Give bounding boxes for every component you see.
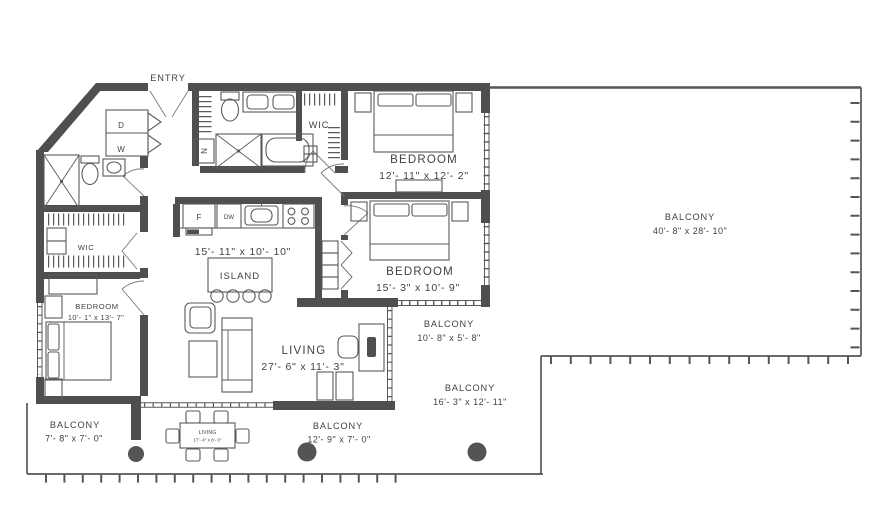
chair-icon [214,411,228,423]
wic1-label: WIC [309,120,330,130]
toilet-icon [221,92,239,121]
kitchen-sink-icon [245,201,278,225]
bifold-door-icon [148,135,161,153]
closet-bifold-icon [341,241,352,289]
laundry-closet: D W [106,110,161,156]
shower-icon [44,155,79,208]
toilet-icon [81,156,99,185]
bathtub-icon [262,134,313,166]
chair-icon [186,449,200,461]
balcony-mid-label: BALCONY [424,319,474,329]
balcony-bottom-dims: 12'- 9" x 7'- 0" [307,435,370,445]
fridge-icon: F [183,204,215,235]
living-label: LIVING [282,345,327,357]
dishwasher-icon: DW [217,204,241,228]
bathroom2-door-icon [123,169,144,196]
chair-icon [214,449,228,461]
dining-table-label: LIVING [199,430,217,436]
sink-icon [103,159,125,176]
kitchen-dims: 15'- 11" x 10'- 10" [195,246,292,258]
fridge-label: F [197,213,202,222]
kitchen: F DW 15'- 11" x 10'- 10" ISLAND [180,201,320,302]
shower-icon [216,134,261,168]
balcony-bottom-label: BALCONY [313,421,363,431]
bedroom3-door-icon [122,281,144,315]
desk-chair-icon [338,336,358,358]
balcony-large: BALCONY 40'- 8" x 28'- 10" [653,212,727,236]
dining-table-dims: 17'- 4" x 8'- 0" [193,438,222,443]
side-table-icon [189,341,217,377]
chair-icon [186,411,200,423]
balcony-large-label: BALCONY [665,212,715,222]
living-room: LIVING 27'- 6" x 11'- 3" [185,303,384,400]
closet-shelves-icon [322,241,338,289]
sofa-icon [222,318,252,392]
linen-label: N [200,148,209,154]
balcony-outline [27,88,861,475]
living-dims: 27'- 6" x 11'- 3" [261,361,344,373]
column-icon [468,443,487,462]
bifold-door-icon [148,113,161,131]
nightstand-icon [355,93,371,112]
balcony-lower-dims: 16'- 3" x 12'- 11" [433,397,507,407]
floorplan-drawing: ENTRY D W N [0,0,896,512]
column-icon [298,443,317,462]
bedroom-2: BEDROOM 15'- 3" x 10'- 9" [322,201,468,294]
balcony-lower-label: BALCONY [445,383,495,393]
balcony-mid: BALCONY 10'- 8" x 5'- 8" [417,319,480,343]
dishwasher-label: DW [224,214,234,221]
seat-icon [317,372,333,400]
island-label: ISLAND [220,271,260,282]
chair-icon [236,429,249,443]
seat-icon [336,372,353,400]
entry-label: ENTRY [150,73,185,83]
entry-door-icon [150,91,188,117]
wic-bedroom3: WIC [47,220,126,262]
main-bathroom: N [194,92,313,168]
wic2-label: WIC [78,243,95,252]
balcony-lower: BALCONY 16'- 3" x 12'- 11" [433,383,507,407]
bedroom1-dims: 12'- 11" x 12'- 2" [379,170,469,182]
bedroom3-label: BEDROOM [75,302,118,311]
bed-icon [370,201,449,260]
second-bathroom [44,155,125,208]
balcony-left-label: BALCONY [50,420,100,430]
balcony-bottom: BALCONY 12'- 9" x 7'- 0" [307,421,370,445]
dryer-label: D [118,121,124,130]
bed-icon [46,322,111,380]
nightstand-icon [452,202,468,221]
desk-icon [338,324,384,371]
balcony-large-dims: 40'- 8" x 28'- 10" [653,226,727,236]
washer-label: W [117,145,125,154]
armchair-icon [185,303,215,333]
column-icon [128,446,144,462]
wic2-door-icon [122,233,137,269]
bedroom-1: BEDROOM 12'- 11" x 12'- 2" [355,91,472,192]
structural-columns [128,443,487,463]
nightstand-icon [351,202,367,221]
bed-icon [374,91,453,152]
balcony-mid-dims: 10'- 8" x 5'- 8" [417,333,480,343]
bedroom2-dims: 15'- 3" x 10'- 9" [376,282,460,294]
nightstand-icon [45,296,62,318]
balcony-left: BALCONY 7'- 8" x 7'- 0" [45,420,103,444]
stove-icon [283,204,314,228]
floorplan-page: ENTRY D W N [0,0,896,512]
bedroom1-label: BEDROOM [390,154,458,166]
bedroom-3: BEDROOM 10'- 1" x 13'- 7" [45,275,124,399]
bedroom3-dims: 10'- 1" x 13'- 7" [68,313,124,322]
kitchen-island: ISLAND [208,258,272,302]
bedroom2-label: BEDROOM [386,266,454,278]
bedroom2-door-icon [344,206,368,235]
nightstand-icon [456,93,472,112]
dining-area: LIVING 17'- 4" x 8'- 0" [166,411,249,461]
chair-icon [166,429,179,443]
double-vanity-icon [243,92,299,112]
balcony-left-dims: 7'- 8" x 7'- 0" [45,434,103,444]
